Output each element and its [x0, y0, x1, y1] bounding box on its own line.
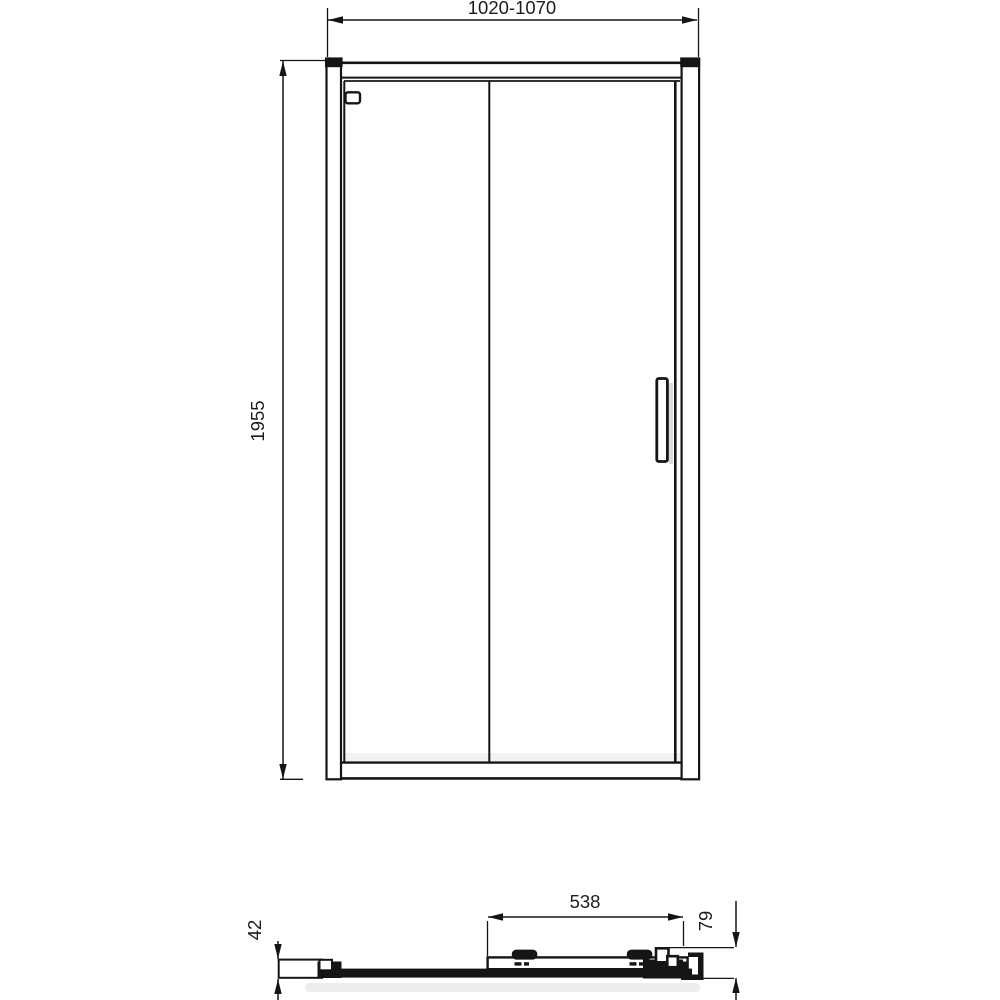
- dimension-width-label: 1020-1070: [468, 0, 556, 18]
- dimension-height-label: 1955: [247, 400, 268, 441]
- dimension-79-label: 79: [695, 911, 716, 932]
- door-handle: [657, 379, 668, 462]
- floor-shadow: [305, 983, 700, 992]
- arrowhead-left-icon: [328, 16, 343, 23]
- wall-bracket-cap-left: [325, 57, 343, 67]
- fixed-panel-clamp-notch: [320, 960, 333, 971]
- bottom-section-view: 538 42 79: [244, 891, 740, 1000]
- dimension-wall-profile-depth: 42: [244, 920, 282, 1000]
- arrowhead-left-icon: [488, 913, 503, 920]
- track-glass-mark-3: [630, 962, 637, 965]
- arrowhead-down-icon: [274, 944, 281, 959]
- shower-door-technical-drawing: 1020-1070 1955: [0, 0, 1000, 1000]
- arrowhead-up-icon: [274, 979, 281, 994]
- top-guide-bracket: [346, 92, 361, 103]
- wall-bracket-cap-right: [680, 57, 700, 67]
- right-profile-top: [688, 953, 704, 958]
- front-elevation-view: 1020-1070 1955: [247, 0, 700, 779]
- glass-bottom-shading: [345, 753, 680, 761]
- dimension-height: 1955: [247, 61, 326, 780]
- dimension-width: 1020-1070: [328, 0, 699, 57]
- dimension-538-label: 538: [570, 891, 601, 912]
- dimension-sliding-panel-width: 538: [488, 891, 684, 956]
- dimension-42-label: 42: [244, 920, 265, 941]
- track-glass-mark-2: [524, 962, 529, 965]
- arrowhead-right-icon: [668, 913, 683, 920]
- carriage-bracket-lower: [667, 956, 678, 967]
- arrowhead-right-icon: [682, 16, 697, 23]
- wall-profile-right: [682, 59, 700, 780]
- technical-drawing-canvas: 1020-1070 1955: [0, 0, 1000, 1000]
- roller-right: [627, 950, 653, 960]
- handle-shadow: [669, 383, 673, 464]
- arrowhead-up-icon: [279, 61, 286, 76]
- arrowhead-down-icon: [279, 764, 286, 779]
- wall-profile-left: [327, 59, 342, 780]
- arrowhead-down-icon: [732, 932, 739, 947]
- roller-left: [512, 950, 538, 960]
- wall-profile-left-section: [279, 960, 323, 978]
- track-glass-mark-1: [515, 962, 522, 965]
- arrowhead-up-icon: [732, 978, 739, 993]
